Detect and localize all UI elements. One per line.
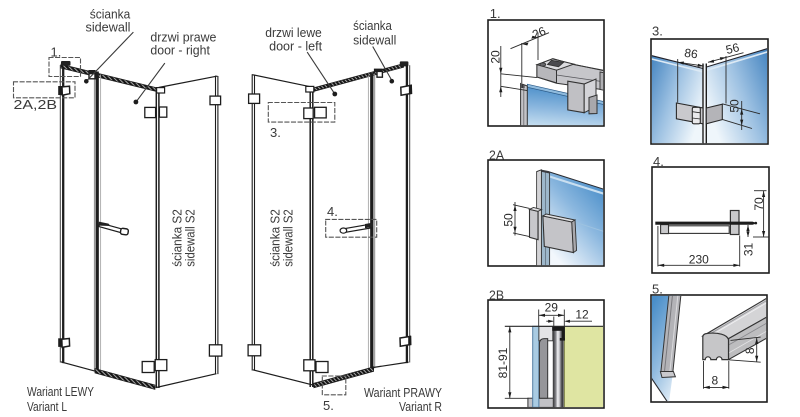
svg-text:12: 12 [575,308,589,322]
svg-text:31: 31 [741,243,755,257]
svg-text:sidewall S2: sidewall S2 [183,209,198,267]
svg-text:8: 8 [711,373,718,387]
svg-text:sidewall: sidewall [86,20,131,35]
svg-text:8: 8 [743,347,757,354]
svg-text:5.: 5. [652,282,663,297]
svg-text:3.: 3. [652,24,663,39]
svg-text:2A: 2A [489,148,504,163]
svg-text:1.: 1. [490,6,501,21]
svg-text:door - left: door - left [269,39,322,54]
svg-text:4.: 4. [653,154,664,169]
svg-text:86: 86 [683,46,698,62]
svg-text:ścianka: ścianka [353,18,392,33]
svg-text:20: 20 [489,50,503,64]
svg-text:3.: 3. [270,125,281,140]
svg-text:230: 230 [689,253,709,267]
svg-text:Wariant PRAWY: Wariant PRAWY [364,385,442,400]
svg-text:2A,2B: 2A,2B [14,97,57,112]
svg-text:5.: 5. [323,398,334,413]
svg-text:81-91: 81-91 [496,347,510,378]
svg-text:50: 50 [728,99,742,113]
svg-text:70: 70 [752,197,766,211]
svg-text:29: 29 [545,301,559,315]
svg-text:4.: 4. [327,204,338,219]
svg-text:1.: 1. [51,44,62,59]
svg-text:door - right: door - right [150,43,210,58]
svg-text:Variant R: Variant R [399,399,442,414]
svg-text:sidewall S2: sidewall S2 [281,209,296,267]
svg-text:50: 50 [502,213,516,227]
svg-text:sidewall: sidewall [353,33,396,48]
svg-text:Variant L: Variant L [27,399,67,414]
svg-text:2B: 2B [489,288,504,303]
svg-text:Wariant LEWY: Wariant LEWY [27,384,94,399]
